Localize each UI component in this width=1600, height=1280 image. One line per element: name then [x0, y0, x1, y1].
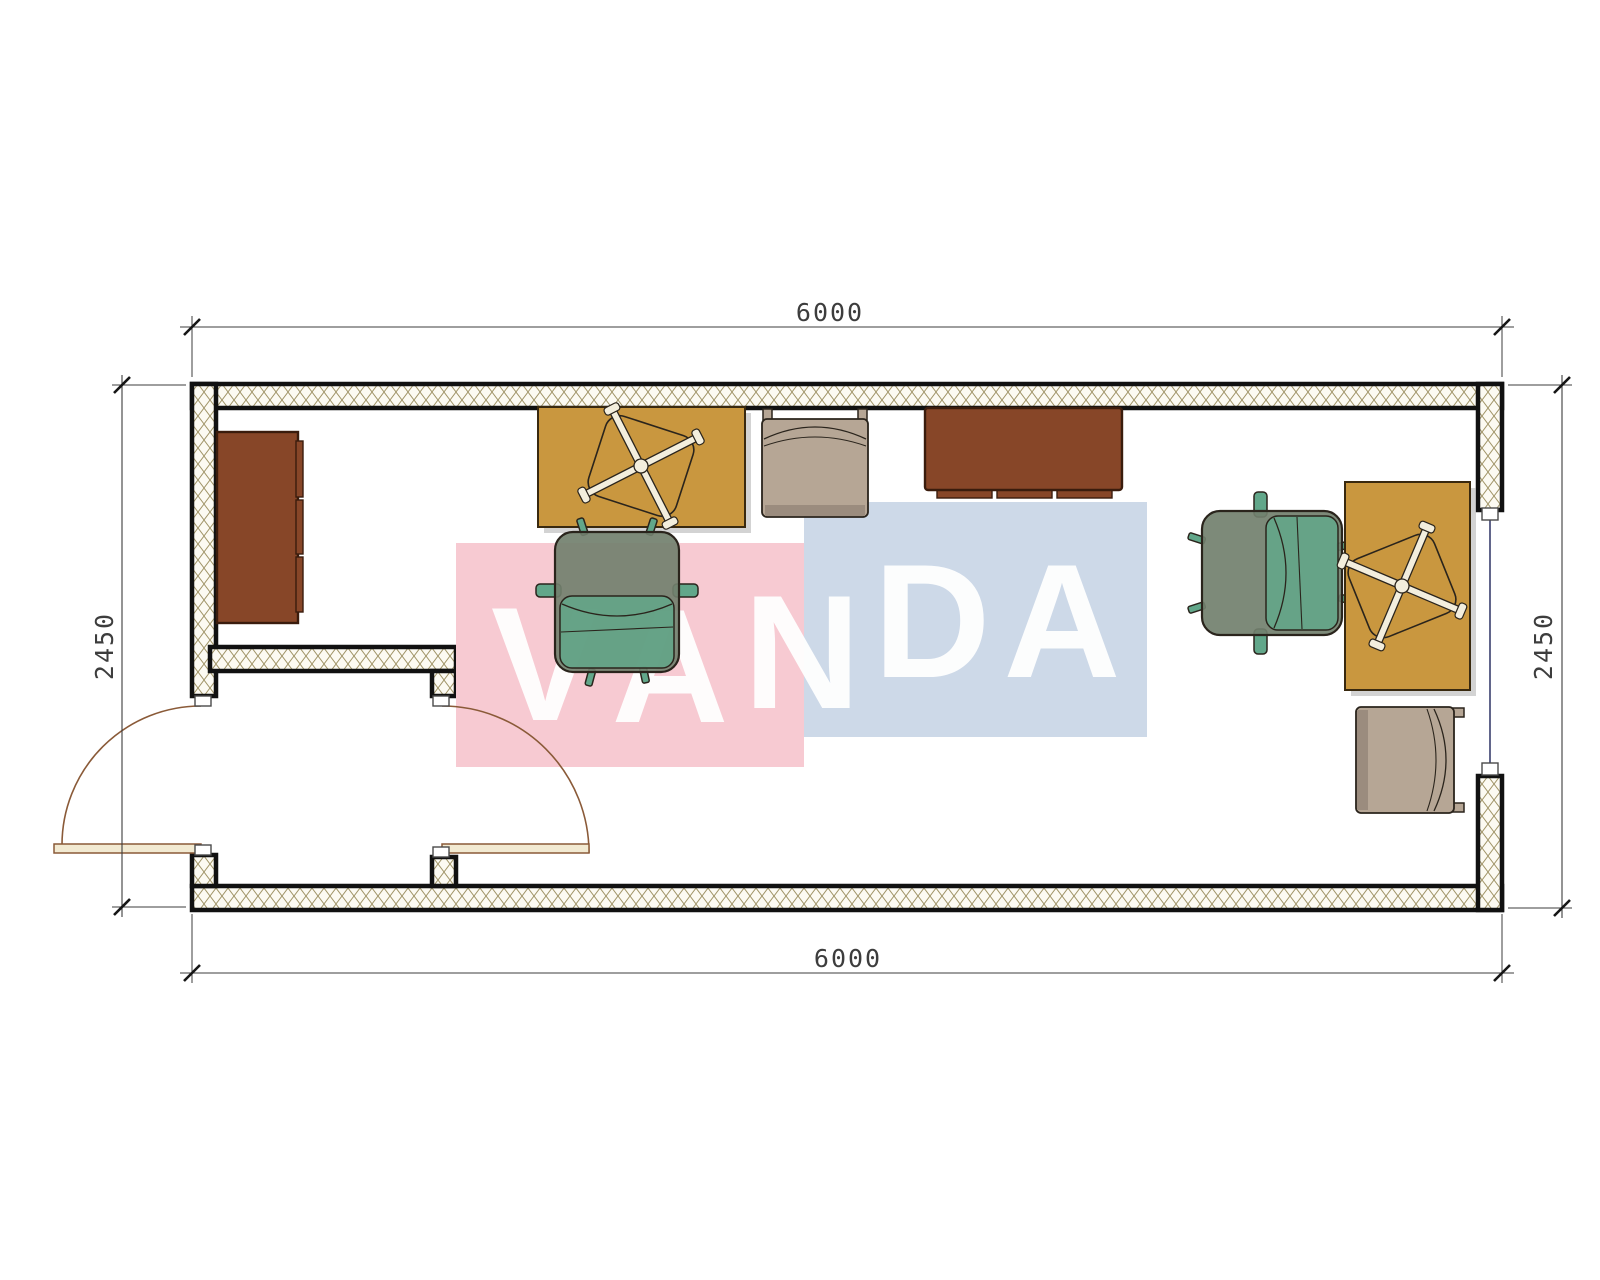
door-post-bottom-inner: [433, 847, 449, 857]
wall-top: [192, 384, 1502, 408]
credenza: [925, 408, 1122, 498]
wall-left-door-stub: [192, 855, 216, 886]
entry-door-leaf-left: [54, 844, 201, 853]
door-post-bottom-left: [195, 845, 211, 855]
floor-plan-canvas: V A N D A: [0, 0, 1600, 1280]
dimension-left: 2450: [90, 375, 186, 917]
wall-right-upper: [1478, 384, 1502, 510]
dimension-right: 2450: [1508, 375, 1572, 918]
door-swing-arc-left: [62, 706, 201, 845]
office-chair-middle: [536, 518, 698, 687]
wall-bottom: [192, 886, 1502, 910]
dimension-left-label: 2450: [90, 612, 119, 680]
wall-entry-bottom-stub: [432, 857, 456, 886]
guest-chair-right: [1356, 707, 1464, 813]
wall-vestibule-partition: [210, 647, 456, 671]
dimension-top: 6000: [180, 298, 1514, 377]
office-chair-right: [1188, 492, 1357, 654]
wardrobe-cabinet: [217, 432, 303, 623]
window-right: [1482, 508, 1498, 775]
dimension-top-label: 6000: [796, 298, 864, 327]
guest-chair-top: [762, 409, 868, 517]
door-post-top-inner: [433, 696, 449, 706]
watermark-letter-n: N: [744, 562, 861, 743]
window-post-bottom: [1482, 763, 1498, 775]
wall-partition-stub: [432, 671, 456, 696]
window-post-top: [1482, 508, 1498, 520]
dimension-bottom-label: 6000: [814, 944, 882, 973]
door-post-top-left: [195, 696, 211, 706]
watermark-letter-d: D: [874, 531, 991, 712]
wall-right-lower: [1478, 776, 1502, 910]
watermark-letter-a2: A: [1004, 531, 1121, 712]
dimension-bottom: 6000: [180, 914, 1514, 983]
entry-door-leaf-inner: [442, 844, 589, 853]
dimension-right-label: 2450: [1529, 612, 1558, 680]
floor-plan-drawing: V A N D A: [0, 0, 1600, 1280]
